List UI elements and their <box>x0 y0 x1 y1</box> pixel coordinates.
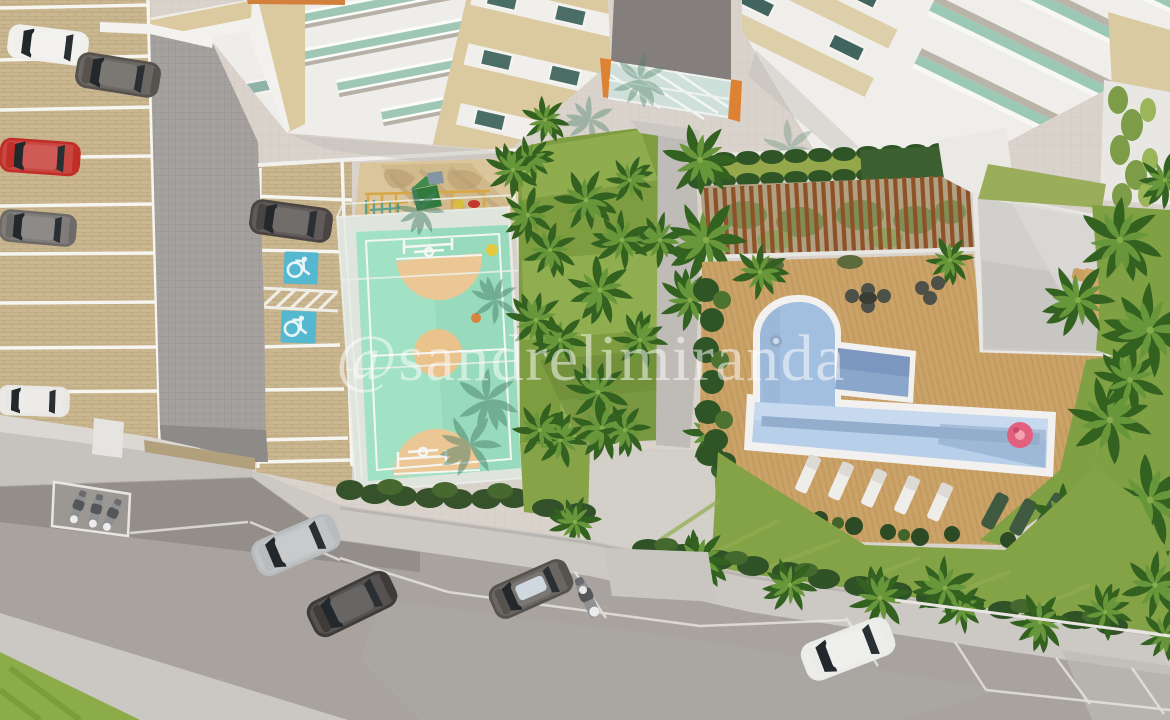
svg-text:@sandrelimiranda: @sandrelimiranda <box>336 322 846 395</box>
